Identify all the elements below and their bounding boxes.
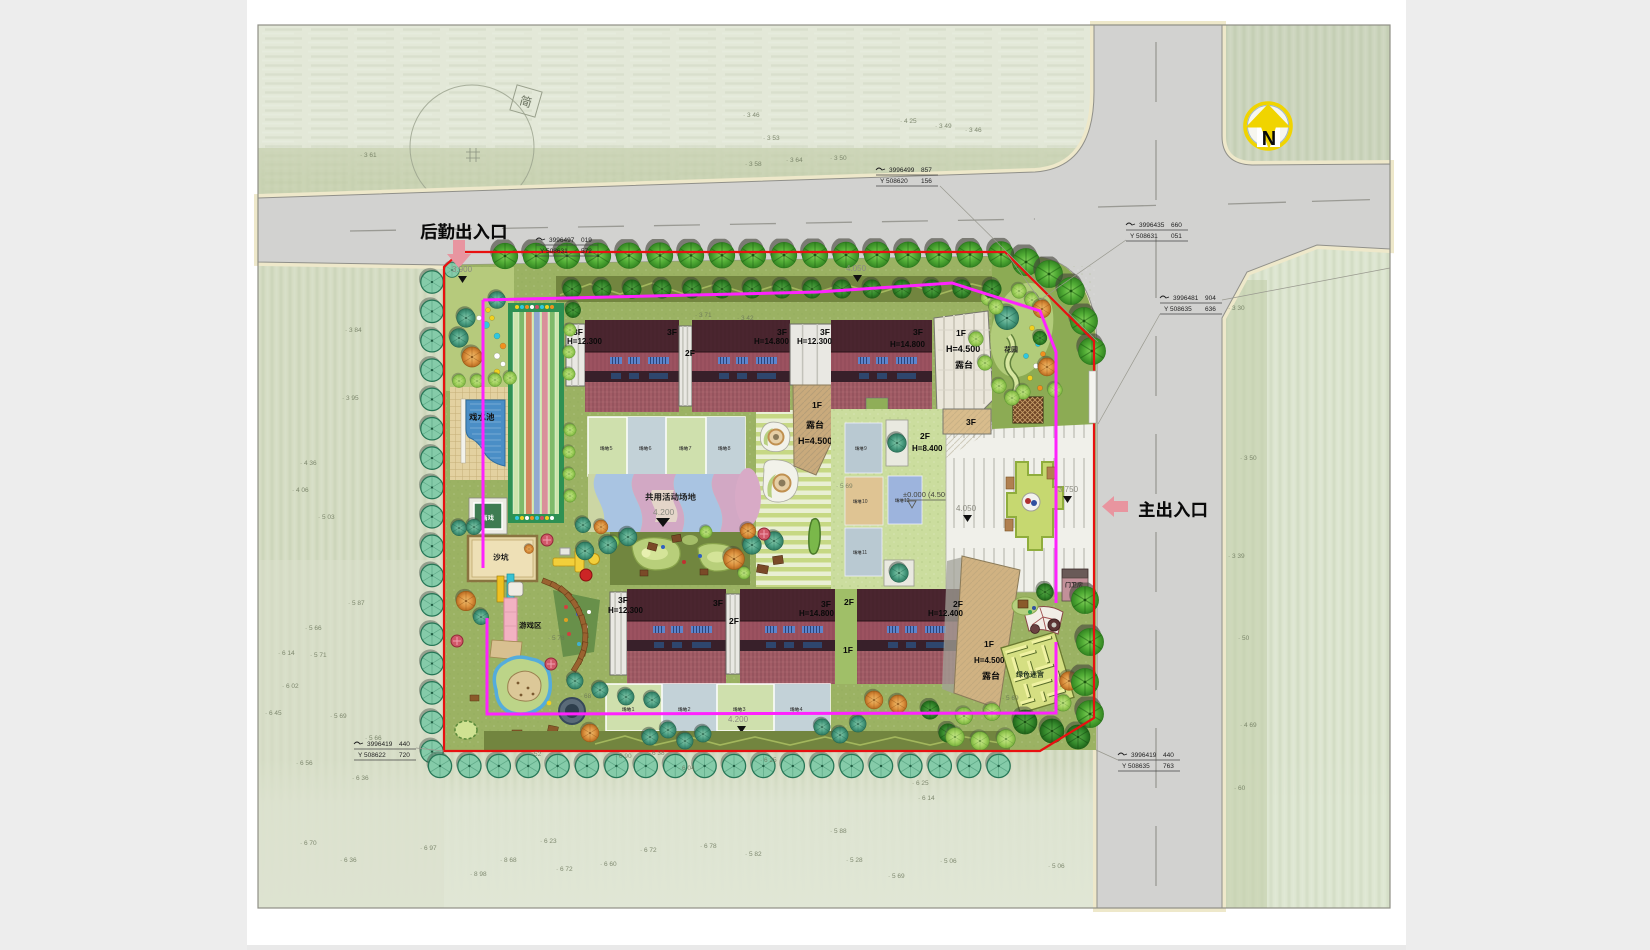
svg-text:· 3 84: · 3 84 bbox=[345, 327, 362, 334]
svg-text:4.200: 4.200 bbox=[728, 715, 749, 724]
svg-text:· 3 50: · 3 50 bbox=[1240, 455, 1257, 462]
svg-text:1F: 1F bbox=[812, 400, 822, 410]
svg-text:· 3 53: · 3 53 bbox=[763, 135, 780, 142]
svg-text:H=12.400: H=12.400 bbox=[928, 609, 963, 618]
svg-text:720: 720 bbox=[399, 752, 410, 759]
svg-text:H=12.300: H=12.300 bbox=[797, 337, 832, 346]
svg-text:· 5 78: · 5 78 bbox=[548, 635, 565, 642]
svg-text:N: N bbox=[1262, 128, 1276, 150]
svg-text:4.050: 4.050 bbox=[846, 264, 867, 273]
svg-text:3996419: 3996419 bbox=[367, 741, 393, 748]
svg-text:3F: 3F bbox=[821, 599, 831, 609]
svg-text:· 5 66: · 5 66 bbox=[365, 735, 382, 742]
svg-text:3.900: 3.900 bbox=[452, 265, 473, 274]
svg-text:3F: 3F bbox=[820, 327, 830, 337]
svg-text:11: 11 bbox=[862, 550, 867, 556]
svg-text:· 6 02: · 6 02 bbox=[282, 683, 299, 690]
svg-text:· 5 87: · 5 87 bbox=[348, 600, 365, 607]
svg-text:019: 019 bbox=[581, 237, 592, 244]
svg-text:· 3 58: · 3 58 bbox=[745, 161, 762, 168]
svg-text:· 6 36: · 6 36 bbox=[352, 775, 369, 782]
svg-text:H=4.500: H=4.500 bbox=[974, 656, 1005, 665]
svg-text:· 3 30: · 3 30 bbox=[1228, 305, 1245, 312]
svg-text:10: 10 bbox=[862, 499, 868, 505]
svg-text:· 8 98: · 8 98 bbox=[470, 871, 487, 878]
svg-text:· 6 78: · 6 78 bbox=[700, 843, 717, 850]
svg-text:Y 508631: Y 508631 bbox=[540, 248, 568, 255]
svg-text:· 6 04: · 6 04 bbox=[678, 765, 695, 772]
svg-text:· 5 06: · 5 06 bbox=[940, 858, 957, 865]
svg-text:Y 508635: Y 508635 bbox=[1122, 763, 1150, 770]
svg-text:· 5 69: · 5 69 bbox=[888, 873, 905, 880]
svg-text:H=4.500: H=4.500 bbox=[798, 436, 832, 446]
svg-text:440: 440 bbox=[399, 741, 410, 748]
svg-text:· 3 71: · 3 71 bbox=[695, 312, 712, 319]
svg-text:7: 7 bbox=[689, 446, 692, 452]
svg-text:1F: 1F bbox=[843, 645, 853, 655]
svg-text:· 4 69: · 4 69 bbox=[1240, 722, 1257, 729]
svg-text:· 6 72: · 6 72 bbox=[556, 866, 573, 873]
svg-text:· 6 25: · 6 25 bbox=[760, 757, 777, 764]
svg-text:2F: 2F bbox=[685, 348, 695, 358]
svg-text:· 60: · 60 bbox=[1234, 785, 1246, 792]
svg-text:3F: 3F bbox=[913, 327, 923, 337]
svg-text:· 6 38: · 6 38 bbox=[648, 750, 665, 757]
svg-text:660: 660 bbox=[1171, 222, 1182, 229]
svg-text:3F: 3F bbox=[618, 595, 628, 605]
svg-text:H=8.400: H=8.400 bbox=[912, 444, 943, 453]
svg-text:· 6 14: · 6 14 bbox=[278, 650, 295, 657]
svg-text:4.050: 4.050 bbox=[956, 504, 977, 513]
svg-text:H=14.800: H=14.800 bbox=[799, 609, 834, 618]
svg-text:4.200: 4.200 bbox=[653, 507, 675, 517]
svg-text:1F: 1F bbox=[956, 328, 966, 338]
svg-text:· 6 97: · 6 97 bbox=[420, 845, 437, 852]
svg-text:156: 156 bbox=[921, 178, 932, 185]
svg-text:2: 2 bbox=[688, 707, 691, 713]
svg-text:904: 904 bbox=[1205, 295, 1216, 302]
svg-text:857: 857 bbox=[921, 167, 932, 174]
svg-text:· 6 14: · 6 14 bbox=[918, 795, 935, 802]
svg-text:· 5 28: · 5 28 bbox=[846, 857, 863, 864]
svg-text:· 5 69: · 5 69 bbox=[836, 483, 853, 490]
svg-text:· 50: · 50 bbox=[1238, 635, 1250, 642]
svg-text:· 4 25: · 4 25 bbox=[900, 118, 917, 125]
svg-text:3996499: 3996499 bbox=[889, 167, 915, 174]
svg-text:2F: 2F bbox=[953, 599, 963, 609]
svg-text:3996497: 3996497 bbox=[549, 237, 575, 244]
svg-text:· 3 39: · 3 39 bbox=[1228, 553, 1245, 560]
svg-text:· 6 60: · 6 60 bbox=[600, 861, 617, 868]
svg-text:3F: 3F bbox=[966, 417, 976, 427]
svg-text:· 3 61: · 3 61 bbox=[360, 152, 377, 159]
svg-text:763: 763 bbox=[1163, 763, 1174, 770]
svg-text:· 3 42: · 3 42 bbox=[737, 315, 754, 322]
svg-text:3F: 3F bbox=[777, 327, 787, 337]
svg-text:1F: 1F bbox=[984, 639, 994, 649]
svg-text:· 5 66: · 5 66 bbox=[305, 625, 322, 632]
svg-text:· 5 06: · 5 06 bbox=[1048, 863, 1065, 870]
svg-text:· 6 70: · 6 70 bbox=[300, 840, 317, 847]
svg-text:· 3 46: · 3 46 bbox=[743, 112, 760, 119]
svg-text:H=12.300: H=12.300 bbox=[567, 337, 602, 346]
svg-text:· 5 88: · 5 88 bbox=[830, 828, 847, 835]
svg-text:2F: 2F bbox=[920, 431, 930, 441]
svg-text:3996419: 3996419 bbox=[1131, 752, 1157, 759]
svg-text:Y 508622: Y 508622 bbox=[358, 752, 386, 759]
svg-text:· 5 69: · 5 69 bbox=[330, 713, 347, 720]
svg-text:9: 9 bbox=[864, 446, 867, 452]
svg-text:3F: 3F bbox=[713, 598, 723, 608]
svg-text:· 3 46: · 3 46 bbox=[965, 127, 982, 134]
svg-text:· 3 50: · 3 50 bbox=[830, 155, 847, 162]
svg-text:· 68: · 68 bbox=[580, 693, 592, 700]
svg-text:· 5 71: · 5 71 bbox=[310, 652, 327, 659]
svg-text:5: 5 bbox=[610, 446, 613, 452]
svg-text:· 8 68: · 8 68 bbox=[500, 857, 517, 864]
svg-text:· 6 36: · 6 36 bbox=[340, 857, 357, 864]
svg-text:636: 636 bbox=[1205, 306, 1216, 313]
svg-text:572: 572 bbox=[581, 248, 592, 255]
svg-text:3.750: 3.750 bbox=[1058, 485, 1079, 494]
svg-text:2F: 2F bbox=[844, 597, 854, 607]
svg-text:±0.000 (4.500): ±0.000 (4.500) bbox=[903, 490, 952, 499]
svg-text:· 4 06: · 4 06 bbox=[292, 487, 309, 494]
svg-text:H=12.300: H=12.300 bbox=[608, 606, 643, 615]
svg-text:3996481: 3996481 bbox=[1173, 295, 1199, 302]
svg-text:· 6 45: · 6 45 bbox=[265, 710, 282, 717]
svg-text:8: 8 bbox=[728, 446, 731, 452]
svg-text:3996435: 3996435 bbox=[1139, 222, 1165, 229]
svg-text:· 6 72: · 6 72 bbox=[640, 847, 657, 854]
svg-text:· 5 03: · 5 03 bbox=[318, 514, 335, 521]
svg-text:H=14.800: H=14.800 bbox=[754, 337, 789, 346]
svg-text:· 3 95: · 3 95 bbox=[342, 395, 359, 402]
svg-text:· 6 90: · 6 90 bbox=[615, 753, 632, 760]
svg-text:6: 6 bbox=[649, 446, 652, 452]
svg-text:3F: 3F bbox=[667, 327, 677, 337]
svg-text:· 5 82: · 5 82 bbox=[745, 851, 762, 858]
svg-text:440: 440 bbox=[1163, 752, 1174, 759]
svg-text:H=14.800: H=14.800 bbox=[890, 340, 925, 349]
svg-text:· 6 23: · 6 23 bbox=[540, 838, 557, 845]
svg-text:· 3 49: · 3 49 bbox=[935, 123, 952, 130]
svg-text:Y 508635: Y 508635 bbox=[1164, 306, 1192, 313]
svg-text:· 52: · 52 bbox=[530, 751, 542, 758]
svg-text:· 6 56: · 6 56 bbox=[296, 760, 313, 767]
svg-text:2F: 2F bbox=[729, 616, 739, 626]
svg-text:· 4 36: · 4 36 bbox=[300, 460, 317, 467]
svg-text:1: 1 bbox=[632, 707, 635, 713]
svg-text:· 3 64: · 3 64 bbox=[786, 157, 803, 164]
svg-text:· 6 25: · 6 25 bbox=[912, 780, 929, 787]
svg-text:Y 508631: Y 508631 bbox=[1130, 233, 1158, 240]
svg-text:051: 051 bbox=[1171, 233, 1182, 240]
svg-text:Y 508620: Y 508620 bbox=[880, 178, 908, 185]
svg-text:· 5 69: · 5 69 bbox=[1002, 695, 1019, 702]
